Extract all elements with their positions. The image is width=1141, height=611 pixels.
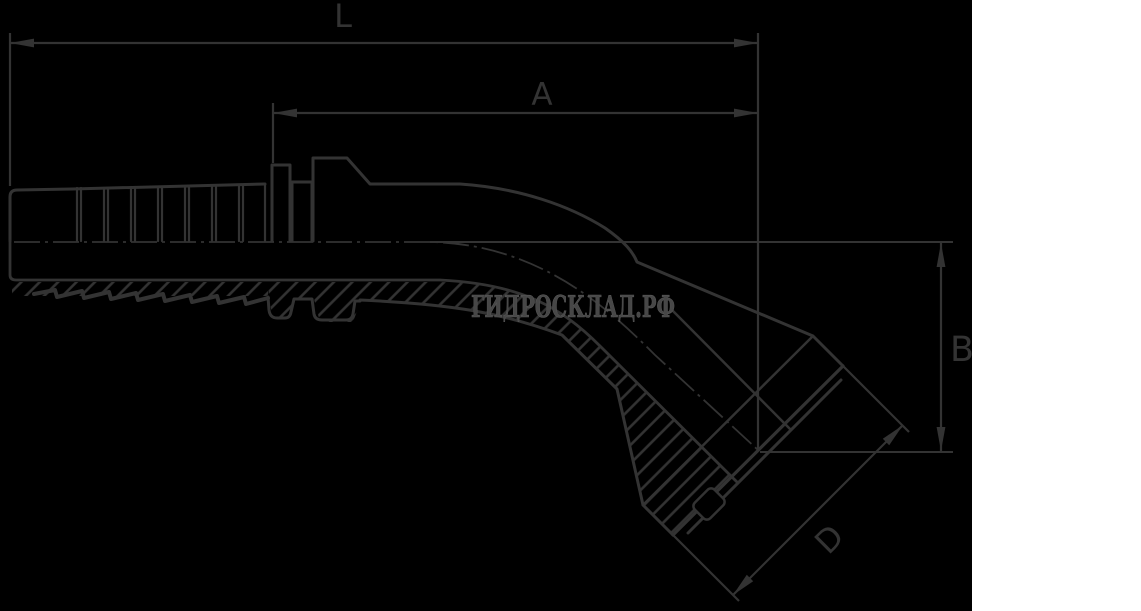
arrowhead-icon (10, 39, 34, 48)
dim-label-a: A (531, 77, 552, 113)
arrowhead-icon (937, 243, 946, 267)
technical-drawing-canvas: L A B D ГИДРОСКЛАД.РФ (0, 0, 1141, 611)
arrowhead-icon (273, 109, 297, 118)
dim-label-d: D (807, 517, 851, 561)
barb-ticks (77, 185, 243, 241)
dim-label-l: L (334, 0, 352, 35)
arrowhead-icon (734, 109, 758, 118)
dimension-a (273, 103, 758, 163)
arrowhead-icon (734, 39, 758, 48)
arrowhead-icon (937, 427, 946, 451)
watermark-text: ГИДРОСКЛАД.РФ (471, 290, 675, 325)
dim-label-b: B (950, 330, 974, 370)
fitting-drawing: L A B D ГИДРОСКЛАД.РФ (0, 0, 1141, 611)
dimension-b (430, 242, 953, 452)
